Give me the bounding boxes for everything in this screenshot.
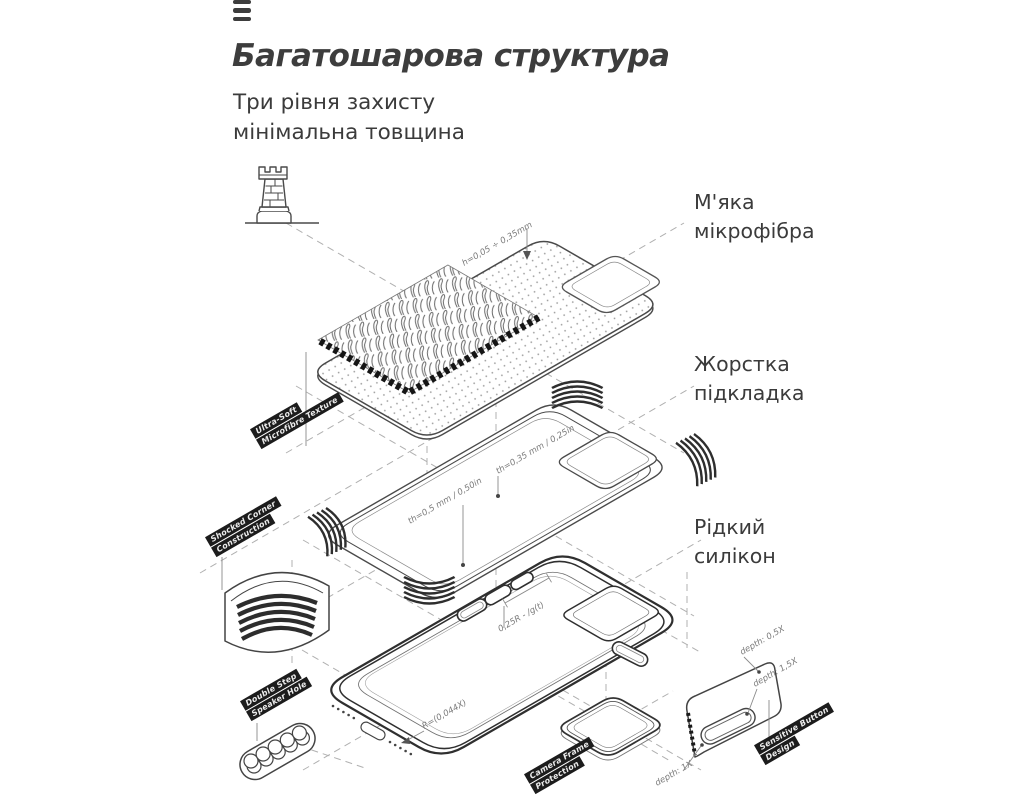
microfiber-layer: h=0,05 ÷ 0,35mm — [306, 220, 659, 446]
exploded-diagram: h=0,05 ÷ 0,35mm th=0,35 mm / 0,25in th=0… — [0, 0, 1024, 800]
speaker-hole-detail — [235, 718, 321, 785]
button-plate-detail: depth: 0,5X depth: 1,5X depth: 1X — [654, 624, 800, 789]
castle-tower-icon — [245, 167, 319, 223]
infographic-page: Багатошарова структура Три рівня захисту… — [0, 0, 1024, 800]
hard-lining-layer: th=0,35 mm / 0,25in th=0,5 mm / 0,50in — [308, 382, 721, 604]
dim-button-depth-outer: depth: 0,5X — [739, 624, 787, 658]
corner-bumper-detail — [222, 557, 329, 652]
